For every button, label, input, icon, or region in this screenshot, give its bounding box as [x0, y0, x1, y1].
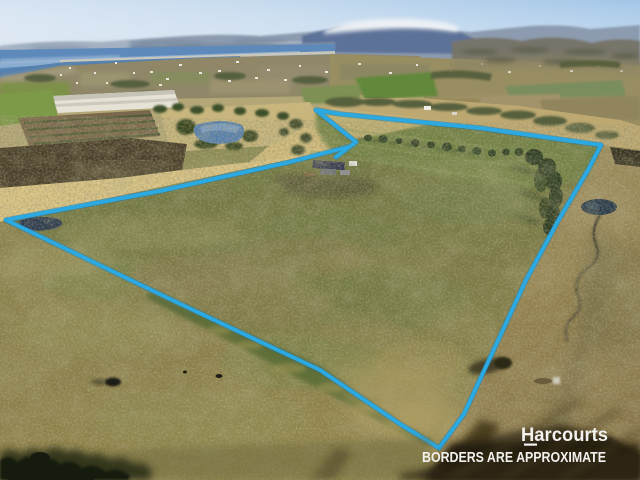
svg-text:BORDERS ARE APPROXIMATE: BORDERS ARE APPROXIMATE — [422, 450, 606, 466]
svg-text:Harcourts: Harcourts — [521, 424, 608, 446]
